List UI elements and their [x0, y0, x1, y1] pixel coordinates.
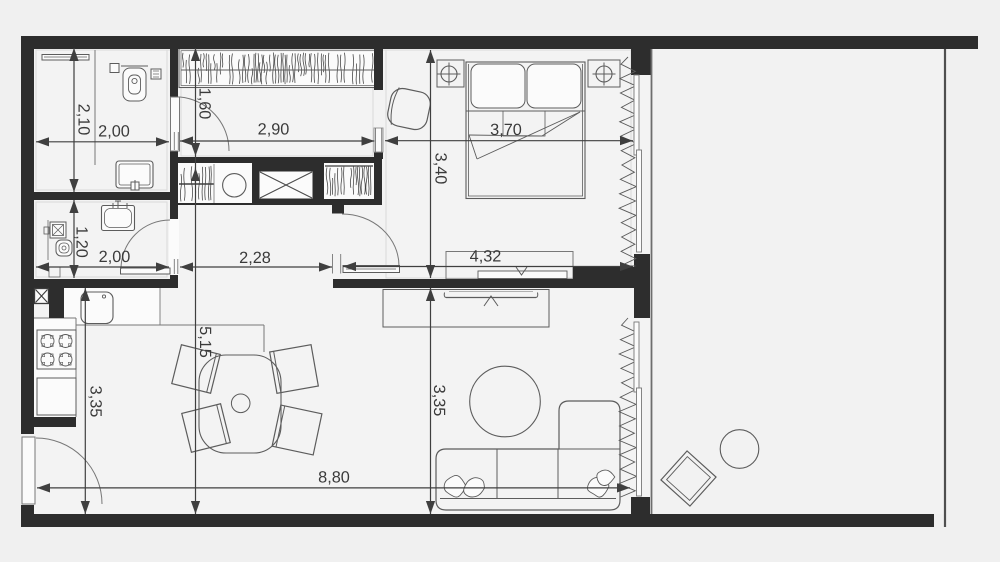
- svg-text:3,35: 3,35: [87, 386, 105, 418]
- svg-text:1,20: 1,20: [73, 226, 91, 258]
- svg-text:2,00: 2,00: [98, 122, 130, 140]
- svg-text:2,10: 2,10: [75, 104, 93, 136]
- svg-text:3,70: 3,70: [490, 121, 522, 139]
- svg-text:8,80: 8,80: [318, 468, 350, 486]
- svg-text:4,32: 4,32: [470, 247, 502, 265]
- svg-text:2,90: 2,90: [258, 120, 290, 138]
- svg-text:2,28: 2,28: [239, 249, 271, 267]
- svg-text:3,35: 3,35: [430, 385, 448, 417]
- svg-text:1,60: 1,60: [196, 88, 214, 120]
- svg-text:3,40: 3,40: [432, 153, 450, 185]
- svg-text:5,15: 5,15: [196, 326, 214, 358]
- svg-text:2,00: 2,00: [99, 248, 131, 266]
